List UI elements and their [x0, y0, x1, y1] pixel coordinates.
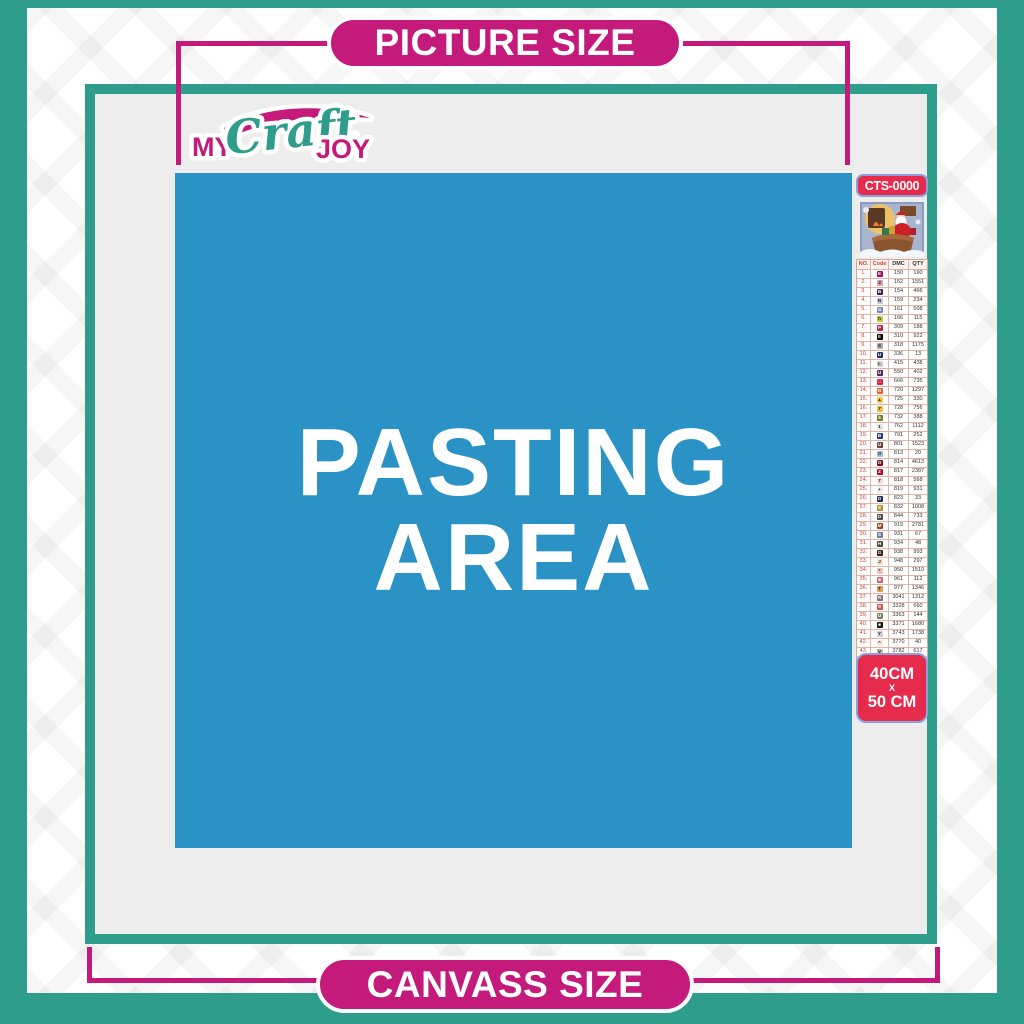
- color-swatch: ^: [877, 640, 883, 646]
- color-swatch: G: [877, 550, 883, 556]
- table-row: 2.31521551: [857, 279, 927, 288]
- table-row: 32.G938993: [857, 549, 927, 558]
- color-swatch: ■: [877, 577, 883, 583]
- color-swatch: N: [877, 388, 883, 394]
- table-row: 26.D82333: [857, 495, 927, 504]
- table-row: 36.T9771346: [857, 585, 927, 594]
- color-swatch: B: [877, 289, 883, 295]
- table-row: 19.B791252: [857, 432, 927, 441]
- color-swatch: H: [877, 541, 883, 547]
- color-swatch: B: [877, 433, 883, 439]
- table-row: 14.N7201297: [857, 387, 927, 396]
- color-swatch: O: [877, 451, 883, 457]
- color-swatch: D: [877, 514, 883, 520]
- table-row: 4.N159234: [857, 297, 927, 306]
- table-row: 17.5732388: [857, 414, 927, 423]
- color-swatch: P: [877, 325, 883, 331]
- table-row: 12.U550402: [857, 369, 927, 378]
- color-swatch: T: [877, 586, 883, 592]
- header-qty: QTY: [909, 260, 927, 269]
- table-row: 16.7728756: [857, 405, 927, 414]
- color-swatch: h: [877, 316, 883, 322]
- header-dmc: DMC: [889, 260, 909, 269]
- size-width: 40CM: [870, 665, 914, 683]
- color-swatch: ▲: [877, 397, 883, 403]
- table-row: 11.L415438: [857, 360, 927, 369]
- color-swatch: U: [877, 370, 883, 376]
- color-swatch: E: [877, 334, 883, 340]
- table-row: 25.+819931: [857, 486, 927, 495]
- color-swatch: L: [877, 361, 883, 367]
- canvass-size-label: CANVASS SIZE: [367, 964, 644, 1006]
- table-row: 9.X3181175: [857, 342, 927, 351]
- header-no: NO.: [857, 260, 871, 269]
- table-row: 33.J948297: [857, 558, 927, 567]
- logo-joy: JOY: [316, 134, 370, 164]
- table-row: 37.R30411312: [857, 594, 927, 603]
- color-legend-table: NO. Code DMC QTY 1.E1501902.315215513.B1…: [856, 259, 928, 703]
- color-swatch: 3: [877, 280, 883, 286]
- color-swatch: N: [877, 298, 883, 304]
- canvass-size-banner: CANVASS SIZE: [316, 956, 694, 1013]
- table-row: 40.■33711680: [857, 621, 927, 630]
- color-swatch: X: [877, 343, 883, 349]
- color-swatch: U: [877, 613, 883, 619]
- table-row: 22.O8144613: [857, 459, 927, 468]
- canvas-size-badge: 40CM X 50 CM: [856, 653, 928, 723]
- table-row: 20.U8011523: [857, 441, 927, 450]
- table-row: 34.*9501510: [857, 567, 927, 576]
- table-row: 30.S93167: [857, 531, 927, 540]
- table-row: 18.17621112: [857, 423, 927, 432]
- color-swatch: E: [877, 271, 883, 277]
- table-row: 35.■961112: [857, 576, 927, 585]
- color-swatch: 7: [877, 478, 883, 484]
- table-row: 24.7818568: [857, 477, 927, 486]
- color-swatch: 8: [877, 505, 883, 511]
- table-row: 7.P309188: [857, 324, 927, 333]
- color-swatch: S: [877, 532, 883, 538]
- table-row: 27.88321008: [857, 504, 927, 513]
- table-row: 31.H93448: [857, 540, 927, 549]
- color-swatch: O: [877, 460, 883, 466]
- color-swatch: 1: [877, 424, 883, 430]
- table-row: 28.D844733: [857, 513, 927, 522]
- color-swatch: G: [877, 307, 883, 313]
- table-row: 15.▲725330: [857, 396, 927, 405]
- table-row: 3.B154466: [857, 288, 927, 297]
- table-row: 8.E310922: [857, 333, 927, 342]
- color-swatch: 7: [877, 406, 883, 412]
- color-swatch: M: [877, 523, 883, 529]
- table-row: 39.U3363144: [857, 612, 927, 621]
- design-code-badge: CTS-0000: [856, 174, 928, 197]
- header-code: Code: [871, 260, 889, 269]
- design-code-label: CTS-0000: [865, 179, 920, 193]
- picture-size-label: PICTURE SIZE: [375, 22, 636, 64]
- size-height: 50 CM: [868, 693, 917, 711]
- color-swatch: 9: [877, 604, 883, 610]
- color-swatch: □: [877, 379, 883, 385]
- color-swatch: ■: [877, 622, 883, 628]
- table-header-row: NO. Code DMC QTY: [857, 260, 927, 270]
- color-swatch: *: [877, 568, 883, 574]
- color-table-rows: 1.E1501902.315215513.B1544664.N1592345.G…: [857, 270, 927, 702]
- color-swatch: U: [877, 442, 883, 448]
- color-swatch: +: [877, 487, 883, 493]
- table-row: 42.^377040: [857, 639, 927, 648]
- table-row: 38.93328660: [857, 603, 927, 612]
- size-separator: X: [889, 684, 895, 693]
- mycraftjoy-logo: MY Craft JOY: [188, 92, 378, 174]
- kit-artwork-thumbnail: [860, 202, 924, 257]
- pasting-area-line1: PASTING: [297, 416, 731, 510]
- table-row: 5.G161508: [857, 306, 927, 315]
- color-swatch: Y: [877, 631, 883, 637]
- table-row: 6.h166115: [857, 315, 927, 324]
- table-row: 29.M9192781: [857, 522, 927, 531]
- color-swatch: J: [877, 559, 883, 565]
- color-swatch: U: [877, 352, 883, 358]
- table-row: 21.O81320: [857, 450, 927, 459]
- pasting-area: PASTING AREA: [175, 173, 852, 848]
- table-row: 13.□666735: [857, 378, 927, 387]
- color-swatch: R: [877, 595, 883, 601]
- pasting-area-line2: AREA: [373, 511, 653, 605]
- color-swatch: Z: [877, 469, 883, 475]
- table-row: 1.E150190: [857, 270, 927, 279]
- table-row: 23.Z8172387: [857, 468, 927, 477]
- color-swatch: D: [877, 496, 883, 502]
- table-row: 10.U33613: [857, 351, 927, 360]
- picture-size-banner: PICTURE SIZE: [327, 16, 683, 70]
- color-swatch: 5: [877, 415, 883, 421]
- table-row: 41.Y37431738: [857, 630, 927, 639]
